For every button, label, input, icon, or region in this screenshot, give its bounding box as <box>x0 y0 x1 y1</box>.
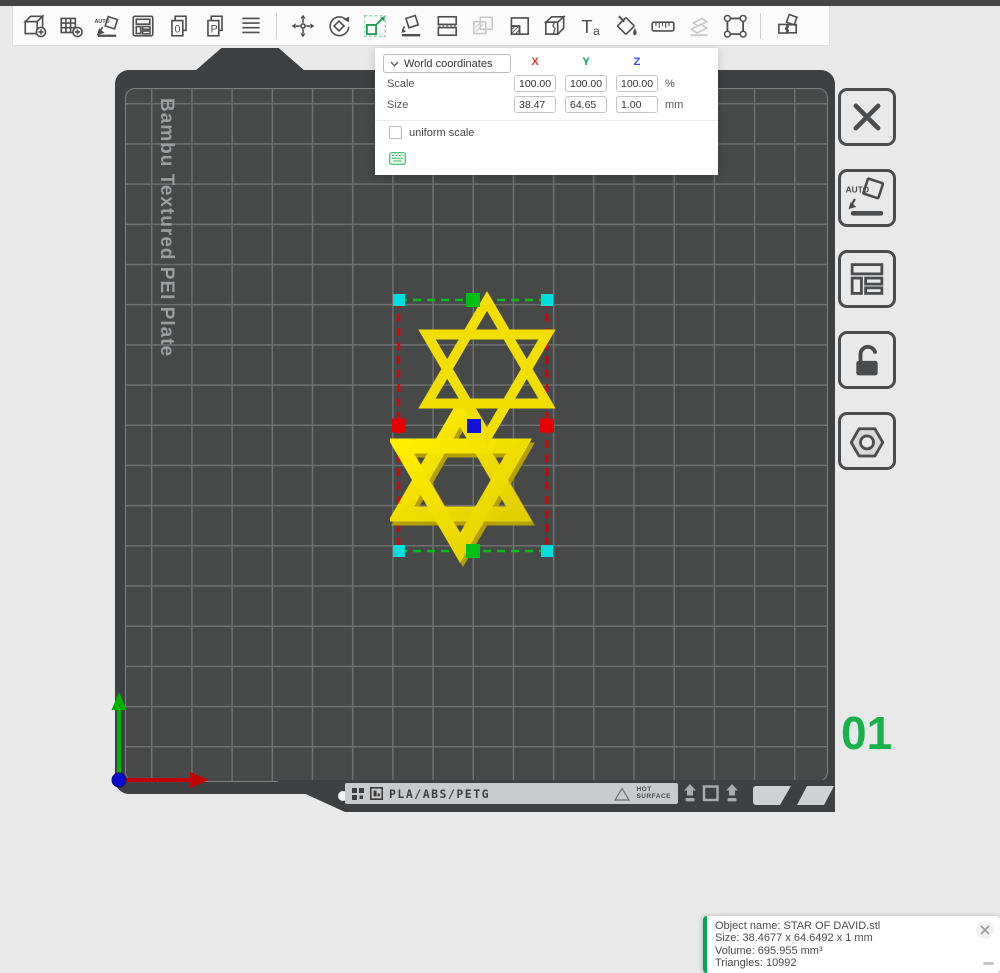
size-y-input[interactable] <box>565 96 607 113</box>
arrange-icon[interactable] <box>126 9 159 43</box>
size-x-input[interactable] <box>514 96 556 113</box>
star-of-david-model-outline[interactable] <box>427 301 547 437</box>
info-resize-dash <box>983 962 994 965</box>
plate-number-label: 01 <box>841 706 892 760</box>
coordinate-axes <box>105 688 225 801</box>
delete-all-button[interactable] <box>838 88 896 146</box>
scale-handle-y-bottom[interactable] <box>466 544 480 558</box>
arrange-icon <box>841 251 893 307</box>
assembly-icon <box>682 9 715 43</box>
square-glyph-icon <box>704 787 718 801</box>
close-icon <box>841 89 893 145</box>
auto-orient-icon: AUTO <box>841 170 893 226</box>
arrange-button[interactable] <box>838 250 896 308</box>
plate-material-strip: PLA/ABS/PETG HOT SURFACE <box>345 783 678 804</box>
cut-icon[interactable] <box>538 9 571 43</box>
object-size-line: Size: 38.4677 x 64.6492 x 1 mm <box>715 932 974 944</box>
eject-arrow-icon <box>684 784 696 801</box>
z-axis-origin-dot <box>112 773 126 787</box>
y-axis-arrowhead <box>112 692 127 710</box>
scale-x-input[interactable] <box>514 75 556 92</box>
object-volume-line: Volume: 695.955 mm³ <box>715 945 974 957</box>
plate-mark-icon-1 <box>352 788 364 800</box>
plate-mark-icon-2 <box>370 787 383 800</box>
coordinate-system-value: World coordinates <box>404 58 492 70</box>
material-compatibility-label: PLA/ABS/PETG <box>389 787 490 801</box>
chevron-down-icon <box>390 61 399 67</box>
eject-arrow-icon <box>726 784 738 801</box>
place-on-face-icon[interactable] <box>394 9 427 43</box>
scale-row-label: Scale <box>387 78 415 90</box>
axis-header-x: X <box>514 56 556 68</box>
scale-handle-z-center[interactable] <box>467 419 481 433</box>
axis-header-y: Y <box>565 56 607 68</box>
svg-text:P: P <box>210 23 217 35</box>
toolbar-separator <box>760 13 761 39</box>
star-of-david-model-solid[interactable] <box>401 412 522 552</box>
plate-button-column: AUTO <box>838 88 896 470</box>
plate-edge-glyphs <box>683 784 739 809</box>
document-p-icon[interactable]: P <box>198 9 231 43</box>
split-to-parts-icon[interactable] <box>770 9 803 43</box>
plate-tab <box>195 48 305 71</box>
mirror-icon <box>466 9 499 43</box>
scale-handle-corner-bl[interactable] <box>393 545 405 557</box>
hot-surface-label: HOT SURFACE <box>636 787 671 800</box>
svg-text:a: a <box>593 24 600 38</box>
paint-icon[interactable] <box>610 9 643 43</box>
split-icon[interactable] <box>430 9 463 43</box>
scale-y-input[interactable] <box>565 75 607 92</box>
size-unit-label: mm <box>665 99 683 111</box>
panel-divider <box>375 120 718 121</box>
scale-handle-x-left[interactable] <box>392 419 406 433</box>
seam-icon[interactable] <box>718 9 751 43</box>
hot-surface-warning-icon <box>614 787 630 801</box>
scale-panel: World coordinates X Y Z Scale % Size mm … <box>375 48 718 175</box>
size-row-label: Size <box>387 99 408 111</box>
move-icon[interactable] <box>286 9 319 43</box>
text-tool-icon[interactable]: T a <box>574 9 607 43</box>
plate-name-label: Bambu Textured PEI Plate <box>155 98 177 357</box>
variable-layer-height-icon[interactable] <box>502 9 535 43</box>
size-z-input[interactable] <box>616 96 658 113</box>
axis-header-z: Z <box>616 56 658 68</box>
scale-unit-label: % <box>665 78 675 90</box>
scale-icon[interactable] <box>358 9 391 43</box>
object-name-line: Object name: STAR OF DAVID.stl <box>715 920 974 932</box>
svg-text:0: 0 <box>174 23 180 35</box>
toolbar-separator <box>276 13 277 39</box>
lock-open-icon <box>841 332 893 388</box>
scale-handle-corner-tr[interactable] <box>541 294 553 306</box>
scale-handle-corner-tl[interactable] <box>393 294 405 306</box>
selection-gizmo <box>390 290 565 575</box>
auto-orient-icon[interactable]: AUTO <box>90 9 123 43</box>
info-close-button[interactable] <box>976 921 994 939</box>
document-0-icon[interactable]: 0 <box>162 9 195 43</box>
x-axis-arrowhead <box>190 772 209 788</box>
scale-handle-y-top[interactable] <box>466 293 480 307</box>
rotate-icon[interactable] <box>322 9 355 43</box>
svg-text:T: T <box>581 16 592 37</box>
build-plate[interactable]: Bambu Textured PEI Plate PLA/ABS/PETG HO… <box>115 70 835 812</box>
scale-handle-corner-br[interactable] <box>541 545 553 557</box>
keyboard-shortcut-icon[interactable] <box>389 152 406 168</box>
object-triangles-line: Triangles: 10992 <box>715 957 974 969</box>
uniform-scale-checkbox[interactable] <box>389 126 402 139</box>
scale-handle-x-right[interactable] <box>540 419 554 433</box>
close-icon <box>979 924 991 936</box>
main-toolbar: AUTO 0 P <box>12 6 830 46</box>
scale-z-input[interactable] <box>616 75 658 92</box>
object-info-panel: Object name: STAR OF DAVID.stl Size: 38.… <box>703 916 1000 973</box>
measure-icon[interactable] <box>646 9 679 43</box>
auto-orient-button[interactable]: AUTO <box>838 169 896 227</box>
add-plate-icon[interactable] <box>54 9 87 43</box>
add-object-icon[interactable] <box>18 9 51 43</box>
uniform-scale-label: uniform scale <box>409 127 474 139</box>
plate-settings-button[interactable] <box>838 412 896 470</box>
lock-button[interactable] <box>838 331 896 389</box>
hex-nut-icon <box>841 413 893 469</box>
layers-icon[interactable] <box>234 9 267 43</box>
coordinate-system-dropdown[interactable]: World coordinates <box>383 54 511 73</box>
